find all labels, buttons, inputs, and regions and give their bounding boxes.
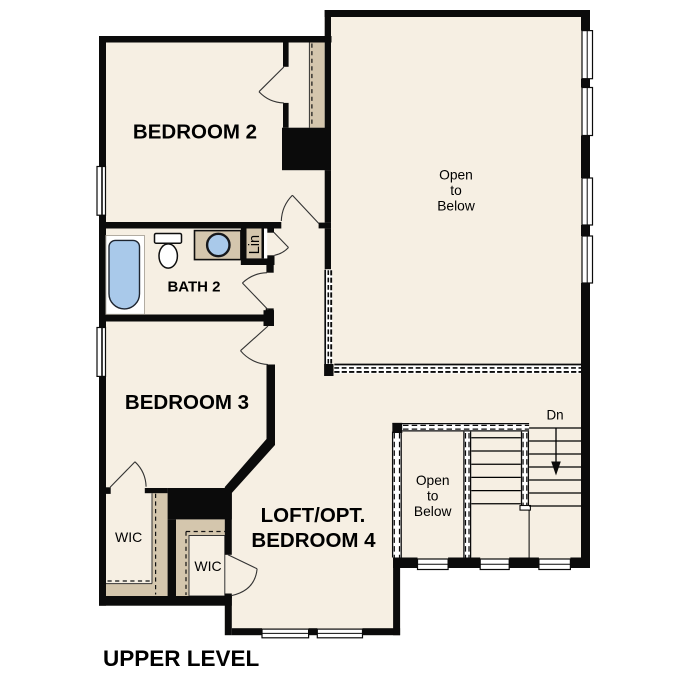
svg-text:WIC: WIC bbox=[115, 529, 142, 545]
svg-text:BATH 2: BATH 2 bbox=[167, 279, 220, 296]
svg-text:Lin: Lin bbox=[247, 235, 263, 254]
svg-text:BEDROOM 3: BEDROOM 3 bbox=[125, 391, 249, 414]
svg-text:to: to bbox=[450, 183, 462, 198]
svg-text:Below: Below bbox=[437, 198, 475, 213]
svg-text:Below: Below bbox=[414, 504, 452, 519]
svg-text:to: to bbox=[427, 489, 439, 504]
svg-text:LOFT/OPT.: LOFT/OPT. bbox=[261, 504, 366, 527]
svg-text:WIC: WIC bbox=[194, 558, 221, 574]
svg-text:BEDROOM 4: BEDROOM 4 bbox=[251, 529, 376, 552]
svg-text:Open: Open bbox=[416, 473, 450, 488]
svg-text:UPPER LEVEL: UPPER LEVEL bbox=[103, 646, 260, 671]
svg-text:Open: Open bbox=[439, 168, 473, 183]
svg-text:Dn: Dn bbox=[547, 408, 564, 423]
svg-text:BEDROOM 2: BEDROOM 2 bbox=[133, 120, 257, 143]
